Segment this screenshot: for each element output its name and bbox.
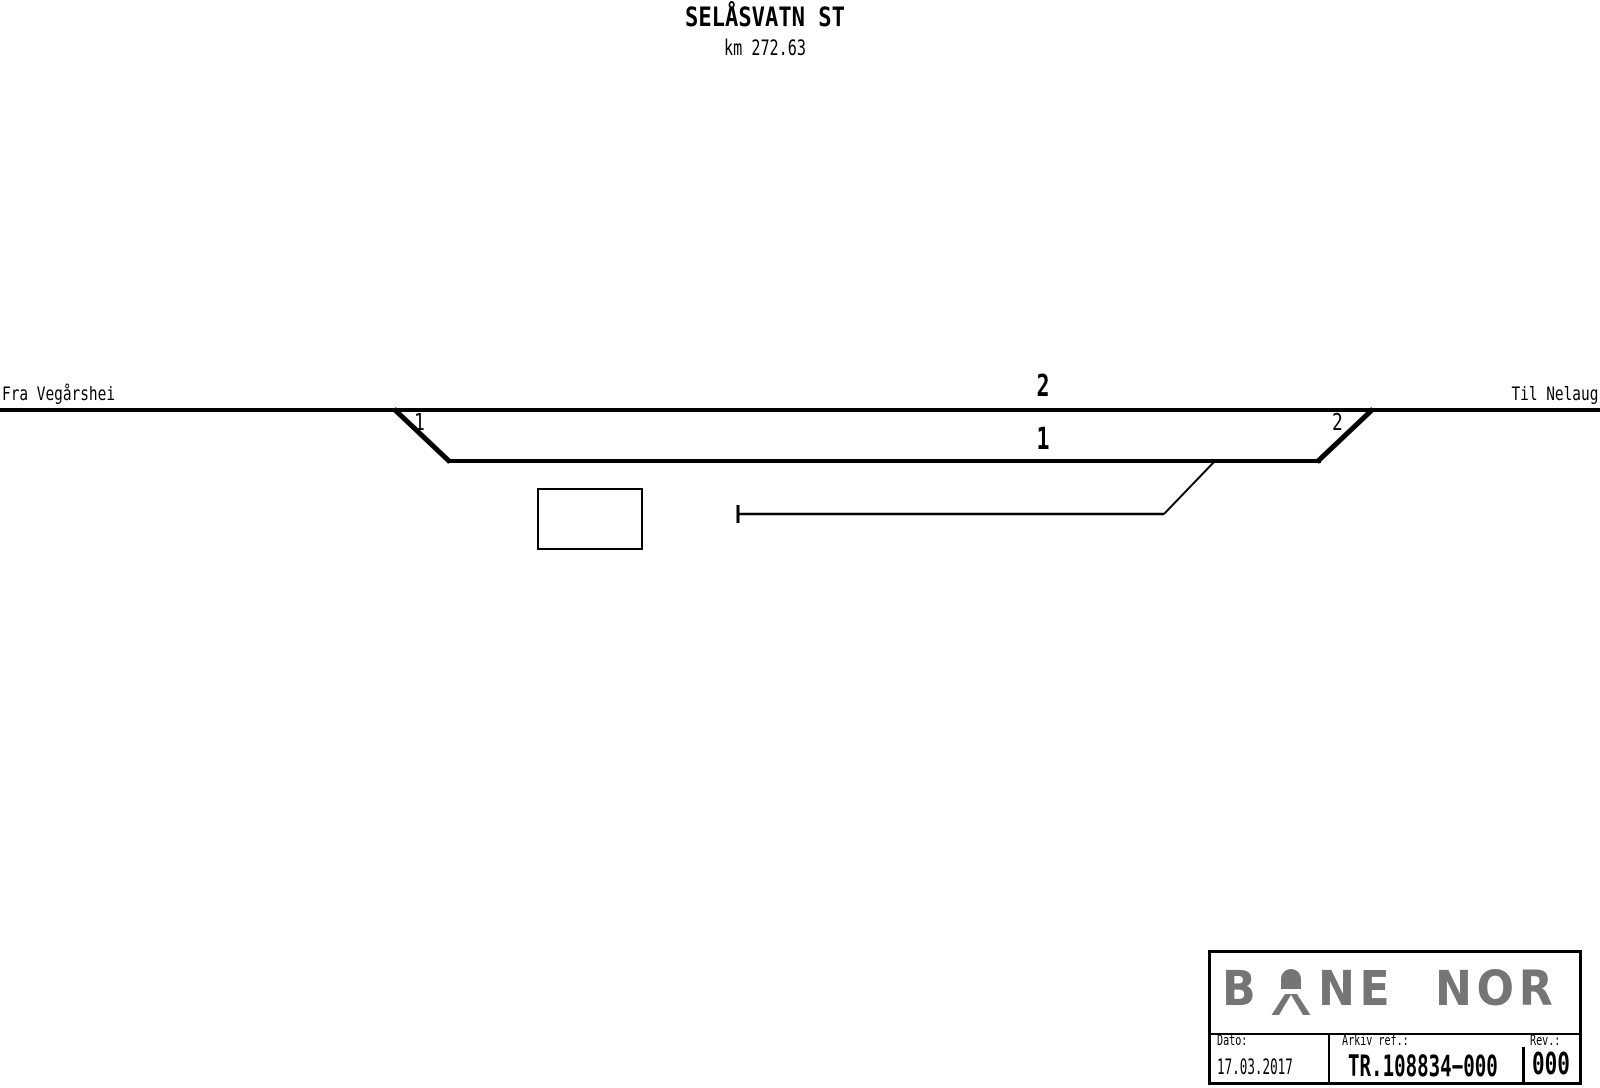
to-direction-label: Til Nelaug: [1511, 385, 1598, 404]
rev-label: Rev.:: [1530, 1034, 1560, 1048]
title-block: B NE NOR Dato: 17.03.2017 Arkiv ref.: TR…: [1208, 950, 1582, 1085]
platform-leader-line: [1164, 462, 1214, 514]
rev-cell-divider: [1522, 1047, 1525, 1082]
logo-letters-nor: NOR: [1435, 965, 1557, 1013]
track-schematic-page: { "station": { "name": "SELÅSVATN ST", "…: [0, 0, 1600, 1088]
station-building: [538, 489, 642, 549]
loop-track-number: 1: [1036, 425, 1049, 455]
station-title: SELÅSVATN ST: [685, 4, 845, 31]
arkiv-ref-label: Arkiv ref.:: [1342, 1034, 1409, 1048]
switch-1-number: 1: [414, 412, 425, 435]
station-km: km 272.63: [724, 38, 806, 59]
rev-value: 000: [1532, 1050, 1570, 1080]
main-track-number: 2: [1036, 372, 1049, 402]
dato-label: Dato:: [1217, 1034, 1247, 1048]
from-direction-label: Fra Vegårshei: [2, 385, 115, 404]
logo-letters-ne: NE: [1318, 965, 1394, 1013]
switch-2-line: [1317, 409, 1373, 462]
bane-nor-logo: B NE NOR: [1211, 953, 1579, 1033]
track-diagram-canvas: [0, 0, 1600, 1088]
logo-letter-b: B: [1222, 965, 1260, 1013]
title-block-vertical-divider: [1328, 1035, 1330, 1082]
dato-value: 17.03.2017: [1217, 1057, 1293, 1078]
bane-nor-a-symbol-icon: [1268, 968, 1314, 1016]
switch-2-number: 2: [1332, 412, 1343, 435]
arkiv-ref-value: TR.108834−000: [1348, 1052, 1498, 1081]
